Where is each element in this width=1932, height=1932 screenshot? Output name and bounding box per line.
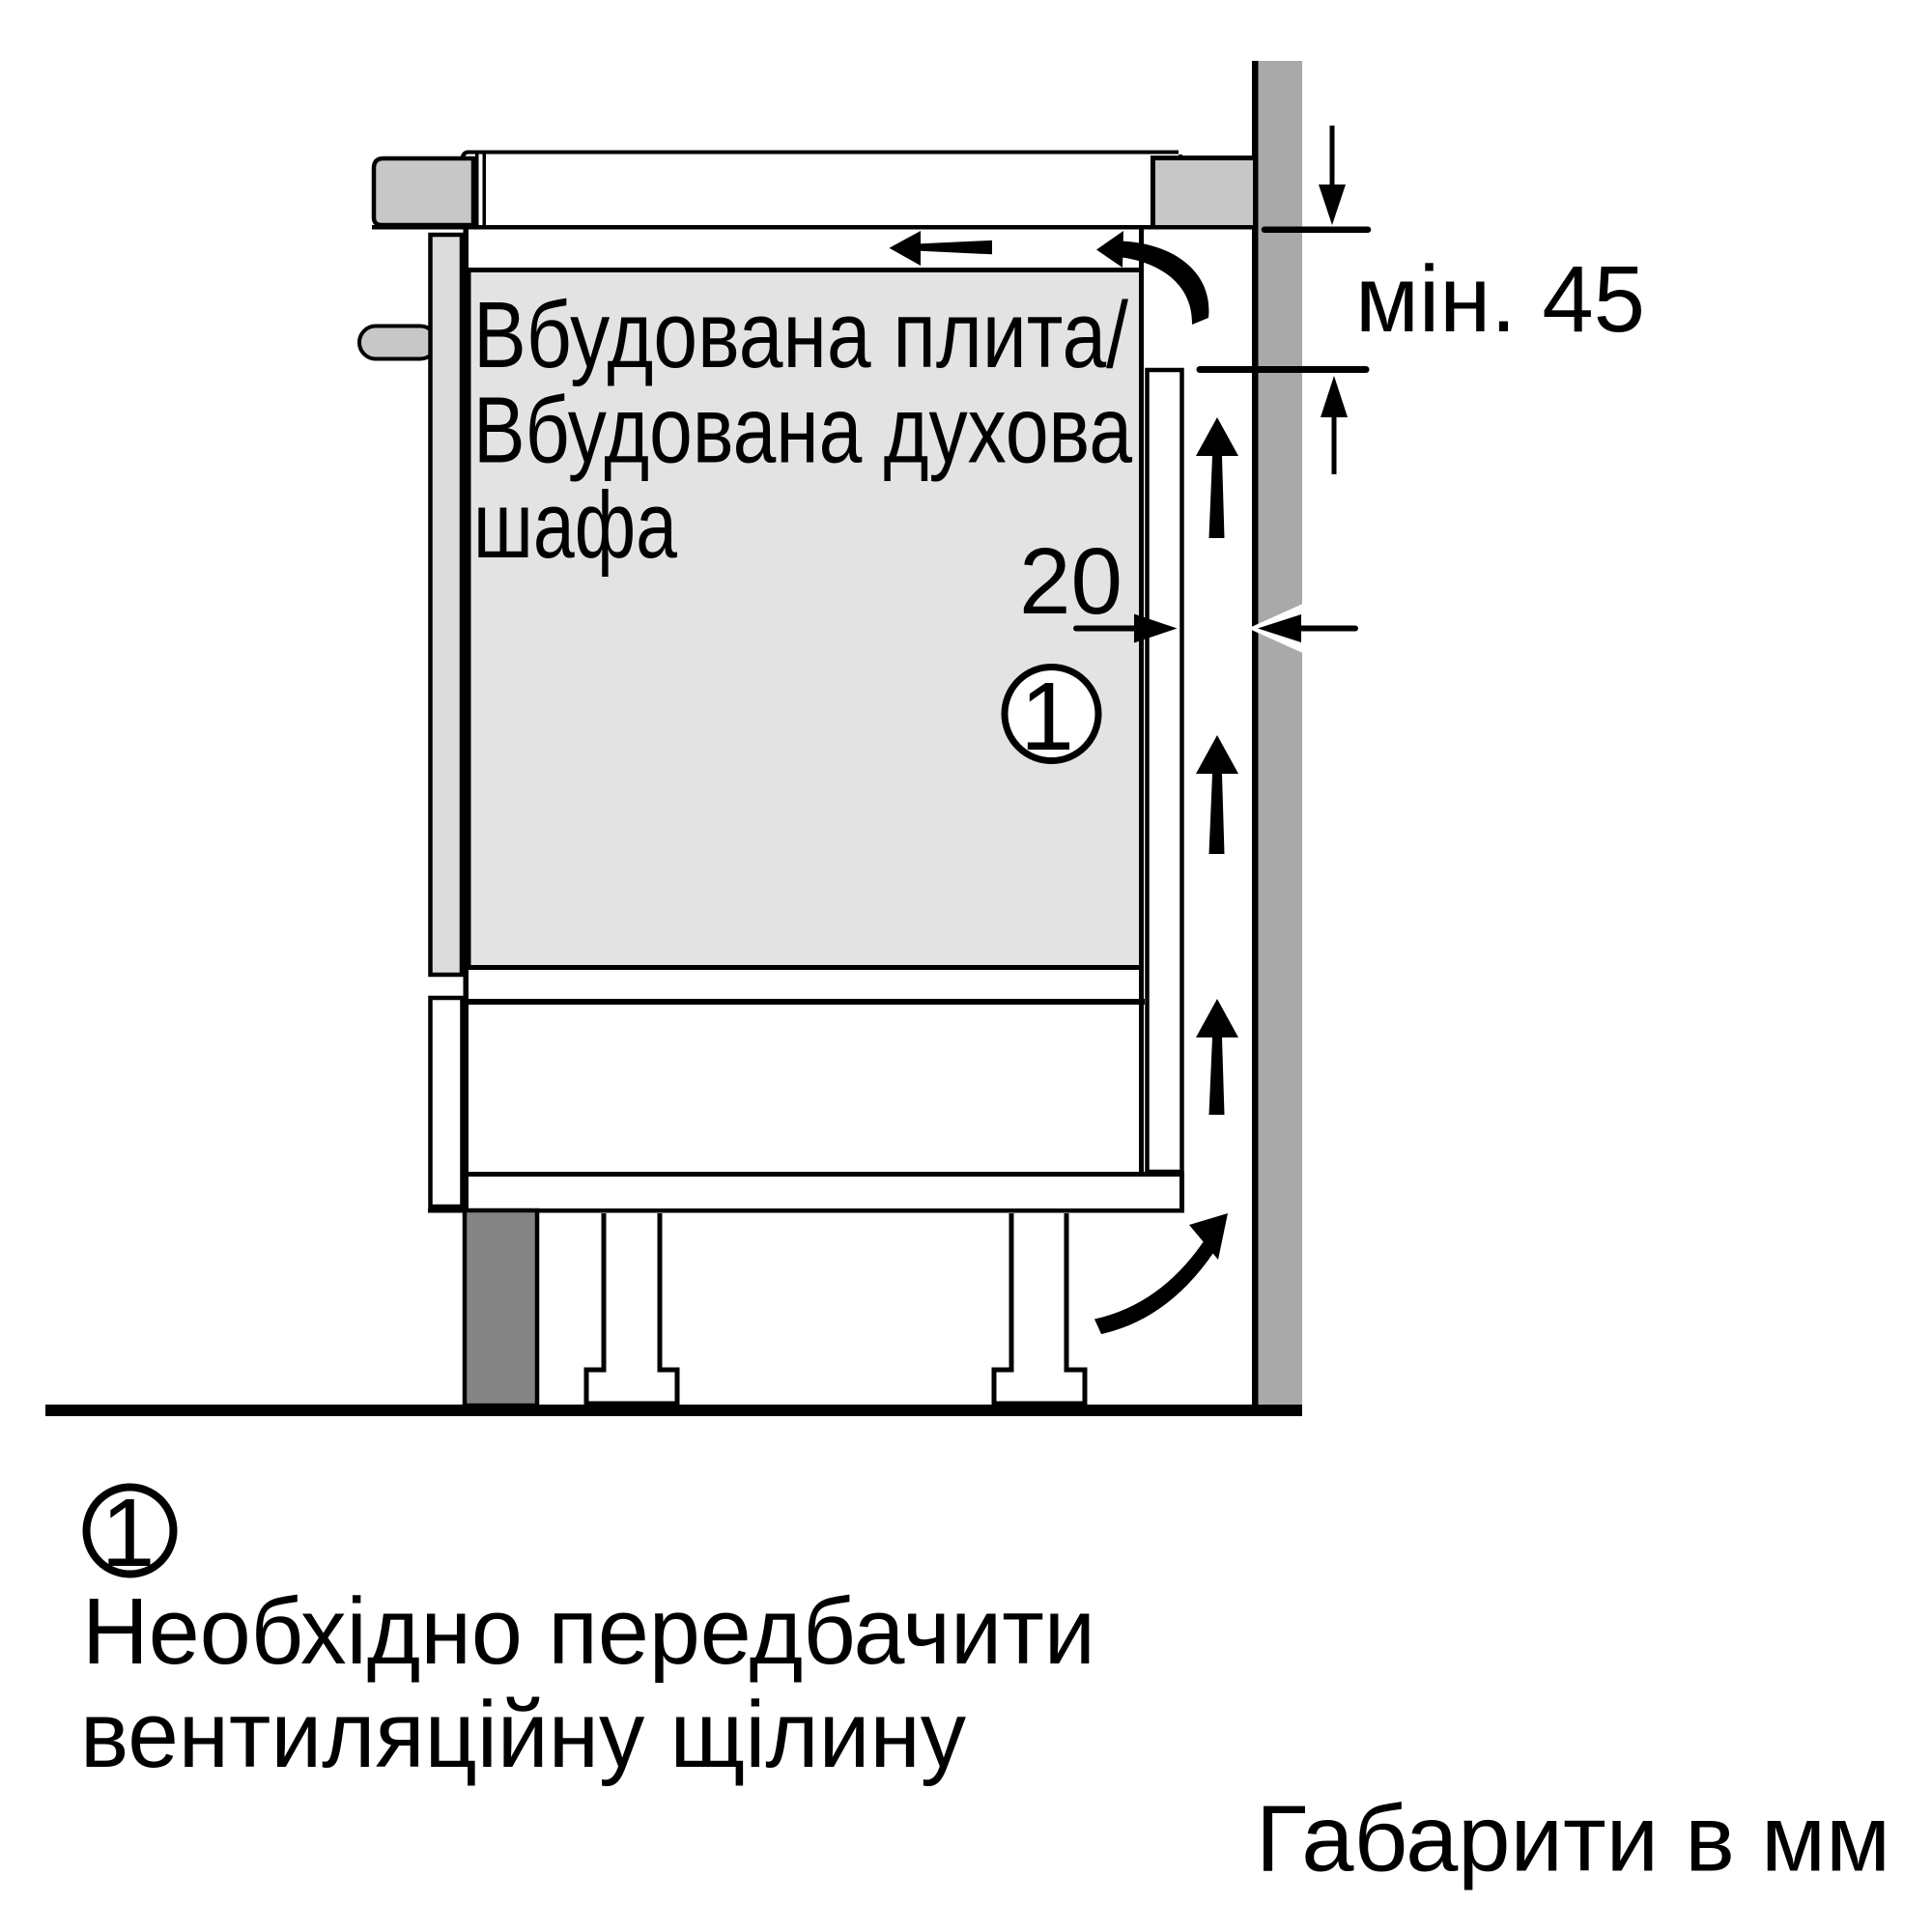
- svg-text:Вбудована духова: Вбудована духова: [473, 378, 1132, 483]
- svg-text:Вбудована плита/: Вбудована плита/: [473, 282, 1128, 387]
- svg-text:1: 1: [1020, 663, 1074, 771]
- svg-text:Габарити в мм: Габарити в мм: [1256, 1786, 1890, 1891]
- svg-text:1: 1: [101, 1479, 156, 1587]
- svg-text:20: 20: [1019, 528, 1122, 634]
- svg-text:мін. 45: мін. 45: [1355, 246, 1645, 352]
- svg-text:шафа: шафа: [473, 472, 677, 578]
- svg-text:Необхідно передбачити: Необхідно передбачити: [82, 1578, 1095, 1684]
- svg-text:вентиляційну щілину: вентиляційну щілину: [80, 1682, 966, 1787]
